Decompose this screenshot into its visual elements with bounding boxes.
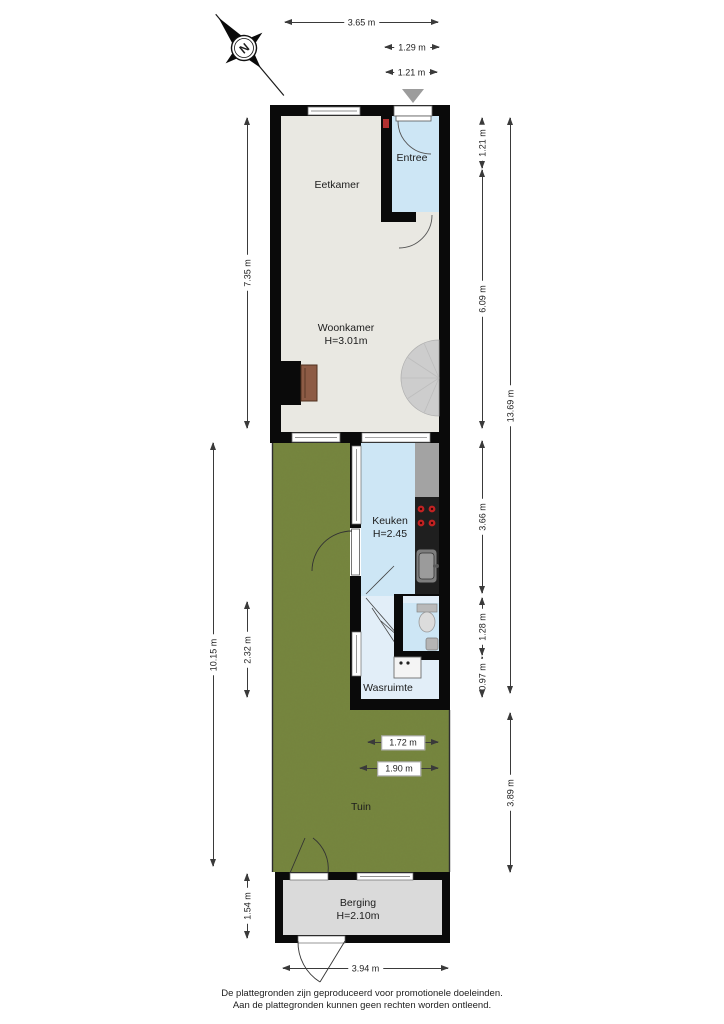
- label-woonkamer-height: H=3.01m: [325, 335, 368, 347]
- dim-left-garden-total: 10.15 m: [213, 443, 214, 866]
- dim-berging-width: 3.94 m: [283, 968, 448, 969]
- disclaimer-line-2: Aan de plattegronden kunnen geen rechten…: [0, 1000, 724, 1012]
- dim-right-kitchen: 3.66 m: [482, 441, 483, 593]
- kitchen-counter: [415, 443, 439, 497]
- dim-right-wc: 1.28 m: [482, 598, 483, 655]
- dim-left-wash: 2.32 m: [247, 602, 248, 697]
- fireplace: [281, 361, 317, 405]
- label-berging-height: H=2.10m: [337, 910, 380, 922]
- label-tuin: Tuin: [351, 801, 371, 813]
- dim-top-width: 3.65 m: [285, 22, 438, 23]
- rear-window: [292, 433, 340, 442]
- compass-icon: N: [197, 0, 302, 111]
- label-keuken: Keuken: [372, 515, 408, 527]
- berging-window: [357, 873, 413, 880]
- washing-machine-icon: [394, 657, 421, 678]
- kitchen-window: [352, 446, 361, 524]
- meter-cupboard-mark: [383, 119, 389, 128]
- label-berging: Berging: [340, 897, 376, 909]
- dim-right-garden: 3.89 m: [510, 713, 511, 872]
- dim-garden-inner-2: 1.90 m: [360, 768, 438, 769]
- berging-rear-door: [298, 936, 345, 982]
- basin-icon: [426, 638, 438, 650]
- floorplan-drawing: N Eetkamer Woonkamer H=3.01m Entree Keuk…: [0, 0, 724, 1024]
- wc-room: [394, 594, 439, 660]
- label-woonkamer: Woonkamer: [318, 322, 375, 334]
- dim-entree-width: 1.29 m: [385, 47, 439, 48]
- rear-opening: [362, 433, 430, 442]
- floorplan-page: N Eetkamer Woonkamer H=3.01m Entree Keuk…: [0, 0, 724, 1024]
- label-entree: Entree: [397, 152, 428, 164]
- dim-right-entree: 1.21 m: [482, 118, 483, 168]
- dim-right-wash: 0.97 m: [482, 657, 483, 697]
- dim-left-living: 7.35 m: [247, 118, 248, 428]
- front-window: [308, 107, 360, 115]
- label-keuken-height: H=2.45: [373, 528, 407, 540]
- wasruimte-window: [352, 632, 361, 676]
- entrance-marker-icon: [402, 89, 424, 103]
- dim-left-berging: 1.54 m: [247, 874, 248, 938]
- disclaimer: De plattegronden zijn geproduceerd voor …: [0, 988, 724, 1013]
- dim-right-total: 13.69 m: [510, 118, 511, 693]
- label-eetkamer: Eetkamer: [315, 179, 360, 191]
- dim-garden-inner-1: 1.72 m: [368, 742, 438, 743]
- sink-icon: [416, 549, 439, 583]
- dim-right-living: 6.09 m: [482, 170, 483, 428]
- disclaimer-line-1: De plattegronden zijn geproduceerd voor …: [0, 988, 724, 1000]
- dim-door-width: 1.21 m: [386, 72, 437, 73]
- label-wasruimte: Wasruimte: [363, 682, 413, 694]
